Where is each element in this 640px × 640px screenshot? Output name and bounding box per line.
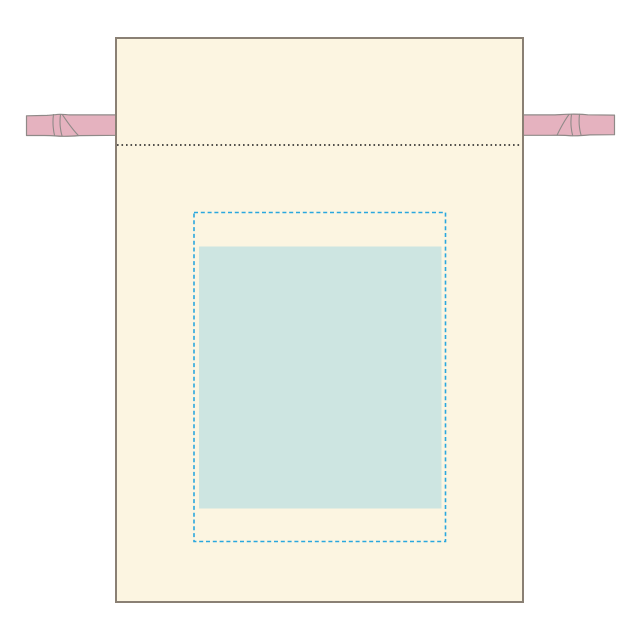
right-drawstring-ribbon-icon: [519, 114, 615, 136]
product-mockup-canvas: [0, 0, 640, 640]
drawstring-bag-illustration: [0, 0, 640, 640]
ribbon-band: [27, 114, 121, 136]
design-placeholder-area[interactable]: [199, 247, 442, 509]
left-drawstring-ribbon-icon: [27, 114, 121, 136]
